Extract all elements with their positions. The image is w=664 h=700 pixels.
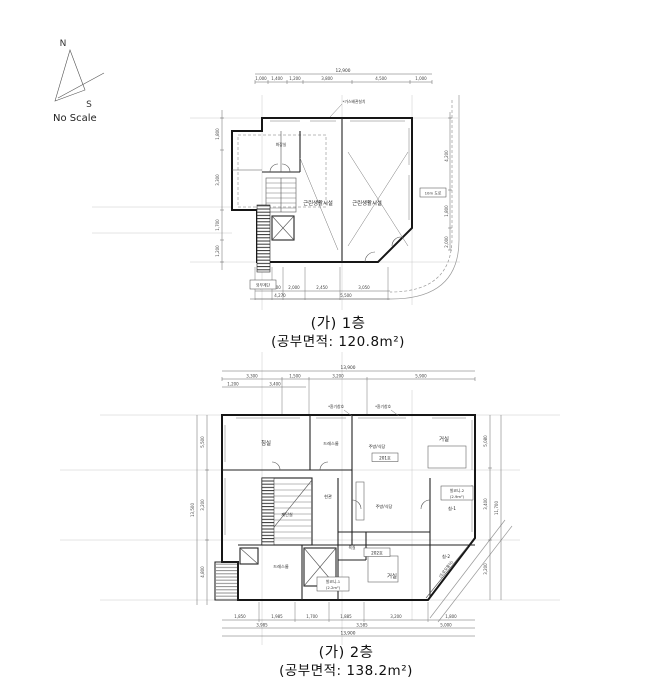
floor2-title: (가) 2층 [319, 644, 374, 661]
dim-label: 3,400 [269, 382, 281, 387]
room-label-living2: 거실 [387, 572, 397, 580]
compass-tail [58, 73, 104, 98]
balcony2-label: 발코니-2 [450, 488, 465, 493]
dim-label: 5,500 [340, 293, 352, 298]
room-label-dress2: 드레스룸 [273, 563, 289, 570]
dim-label: 4,200 [444, 150, 449, 162]
room-label-bed1: 침실 [261, 439, 271, 447]
floor2-area: (공부면적: 138.2m²) [279, 663, 413, 679]
room-label-dress1: 드레스룸 [323, 440, 339, 447]
floor2-interior-walls [222, 415, 475, 600]
room-label-stair: 계단실 [281, 511, 293, 518]
floor1-stair [257, 178, 296, 272]
floor2-door-arcs [272, 462, 430, 556]
floor1-caption: (가) 1층 (공부면적: 120.8m²) [271, 315, 405, 350]
floor1-grid-lines [92, 95, 460, 310]
floor1-plan: 12,900 1,000 1,400 1,200 3,800 4,500 1,0… [92, 68, 460, 310]
floor1-title: (가) 1층 [311, 315, 366, 332]
floor2-balcony-hatch [216, 563, 237, 599]
dim-label: 2,000 [444, 236, 449, 248]
floor2-caption: (가) 2층 (공부면적: 138.2m²) [279, 644, 413, 679]
dim-label: 1,700 [215, 219, 220, 231]
dim-label: 11,700 [494, 501, 499, 515]
vent-note-1: *환기창호 [328, 404, 344, 409]
dim-label: 5,500 [200, 436, 205, 448]
floor1-dimension-labels: 12,900 1,000 1,400 1,200 3,800 4,500 1,0… [215, 68, 449, 298]
dim-label: 2,450 [316, 285, 328, 290]
room-label-retail-right: 근린생활시설 [352, 199, 382, 207]
dim-label: 5,000 [440, 623, 452, 628]
dim-label: 2,000 [288, 285, 300, 290]
floorplan-drawing: N S No Scale [0, 0, 664, 700]
dim-label: 1,985 [271, 614, 283, 619]
compass-north-label: N [60, 39, 67, 49]
no-scale-label: No Scale [53, 113, 97, 124]
dim-label: 3,585 [356, 623, 368, 628]
balcony1-label: 발코니-1 [326, 579, 341, 584]
dim-label: 1,700 [306, 614, 318, 619]
room-label-entry: 현관 [324, 493, 332, 499]
ext-stair-label: 외부계단 [256, 283, 270, 288]
floor1-windows [270, 121, 409, 220]
dim-label: 13,500 [190, 503, 195, 517]
room-label-bath: 욕실 [349, 545, 356, 550]
unit2-label: 202호 [371, 551, 383, 556]
dim-label: 3,300 [246, 374, 258, 379]
dim-label: 1,400 [271, 76, 283, 81]
dim-label: 1,200 [227, 382, 239, 387]
dim-label: 4,270 [274, 293, 286, 298]
room-label-wc: 화장실 [276, 142, 287, 147]
dim-label: 1,800 [215, 128, 220, 140]
floor2-exterior-walls [222, 415, 475, 600]
dim-label: 1,200 [215, 245, 220, 257]
dim-label: 1,800 [445, 614, 457, 619]
dim-label: 1,000 [255, 76, 267, 81]
dim-label: 3,985 [256, 623, 268, 628]
dim-label: 13,900 [340, 631, 355, 637]
dim-label: 4,800 [200, 566, 205, 578]
dim-label: 13,900 [340, 365, 355, 371]
compass: N S No Scale [53, 39, 104, 124]
dim-label: 1,200 [289, 76, 301, 81]
floor1-exterior-stair-hatch [257, 205, 270, 272]
balcony2-area-label: (2.9m²) [450, 494, 465, 499]
dim-label: 12,900 [335, 68, 350, 74]
floor1-elevator [272, 216, 294, 240]
dim-label: 3,300 [215, 174, 220, 186]
room-label-retail-left: 근린생활시설 [303, 199, 333, 207]
dim-label: 3,200 [483, 563, 488, 575]
dim-label: 5,080 [483, 435, 488, 447]
drawing-sheet: N S No Scale [0, 0, 664, 700]
compass-south-label: S [86, 100, 92, 110]
dim-label: 3,050 [358, 285, 370, 290]
dim-label: 3,200 [390, 614, 402, 619]
compass-needle [55, 50, 85, 101]
dim-label: 3,400 [483, 498, 488, 510]
dim-label: 1,885 [340, 614, 352, 619]
room-label-living1: 거실 [439, 435, 449, 443]
dim-label: 4,500 [375, 76, 387, 81]
unit1-label: 201호 [379, 456, 391, 461]
dim-label: 3,200 [332, 374, 344, 379]
dim-label: 3,200 [200, 499, 205, 511]
floor1-door-arcs [270, 164, 401, 262]
dim-label: 1,500 [289, 374, 301, 379]
dim-label: 5,900 [415, 374, 427, 379]
dim-label: 1,800 [444, 205, 449, 217]
floor2-dimension-lines [197, 371, 501, 636]
floor1-dimension-lines [220, 74, 452, 300]
floor1-area: (공부면적: 120.8m²) [271, 334, 405, 350]
floor2-plan: 13,900 3,300 1,500 3,200 5,900 1,200 3,4… [60, 352, 560, 645]
room-label-bed2b: 침-2 [442, 553, 450, 559]
room-label-kitchen1: 주방/식당 [369, 443, 386, 450]
leader-line [330, 104, 342, 117]
room-label-bed2a: 침-1 [448, 505, 456, 511]
room-label-kitchen2: 주방/식당 [376, 503, 393, 510]
road-label: 10m 도로 [425, 191, 442, 196]
balcony1-area-label: (2.2m²) [326, 585, 341, 590]
dim-label: 1,000 [415, 76, 427, 81]
gas-note-label: *가스배관설치 [343, 99, 366, 104]
vent-note-2: *환기창호 [375, 404, 391, 409]
dim-label: 1,850 [234, 614, 246, 619]
dim-label: 3,800 [321, 76, 333, 81]
